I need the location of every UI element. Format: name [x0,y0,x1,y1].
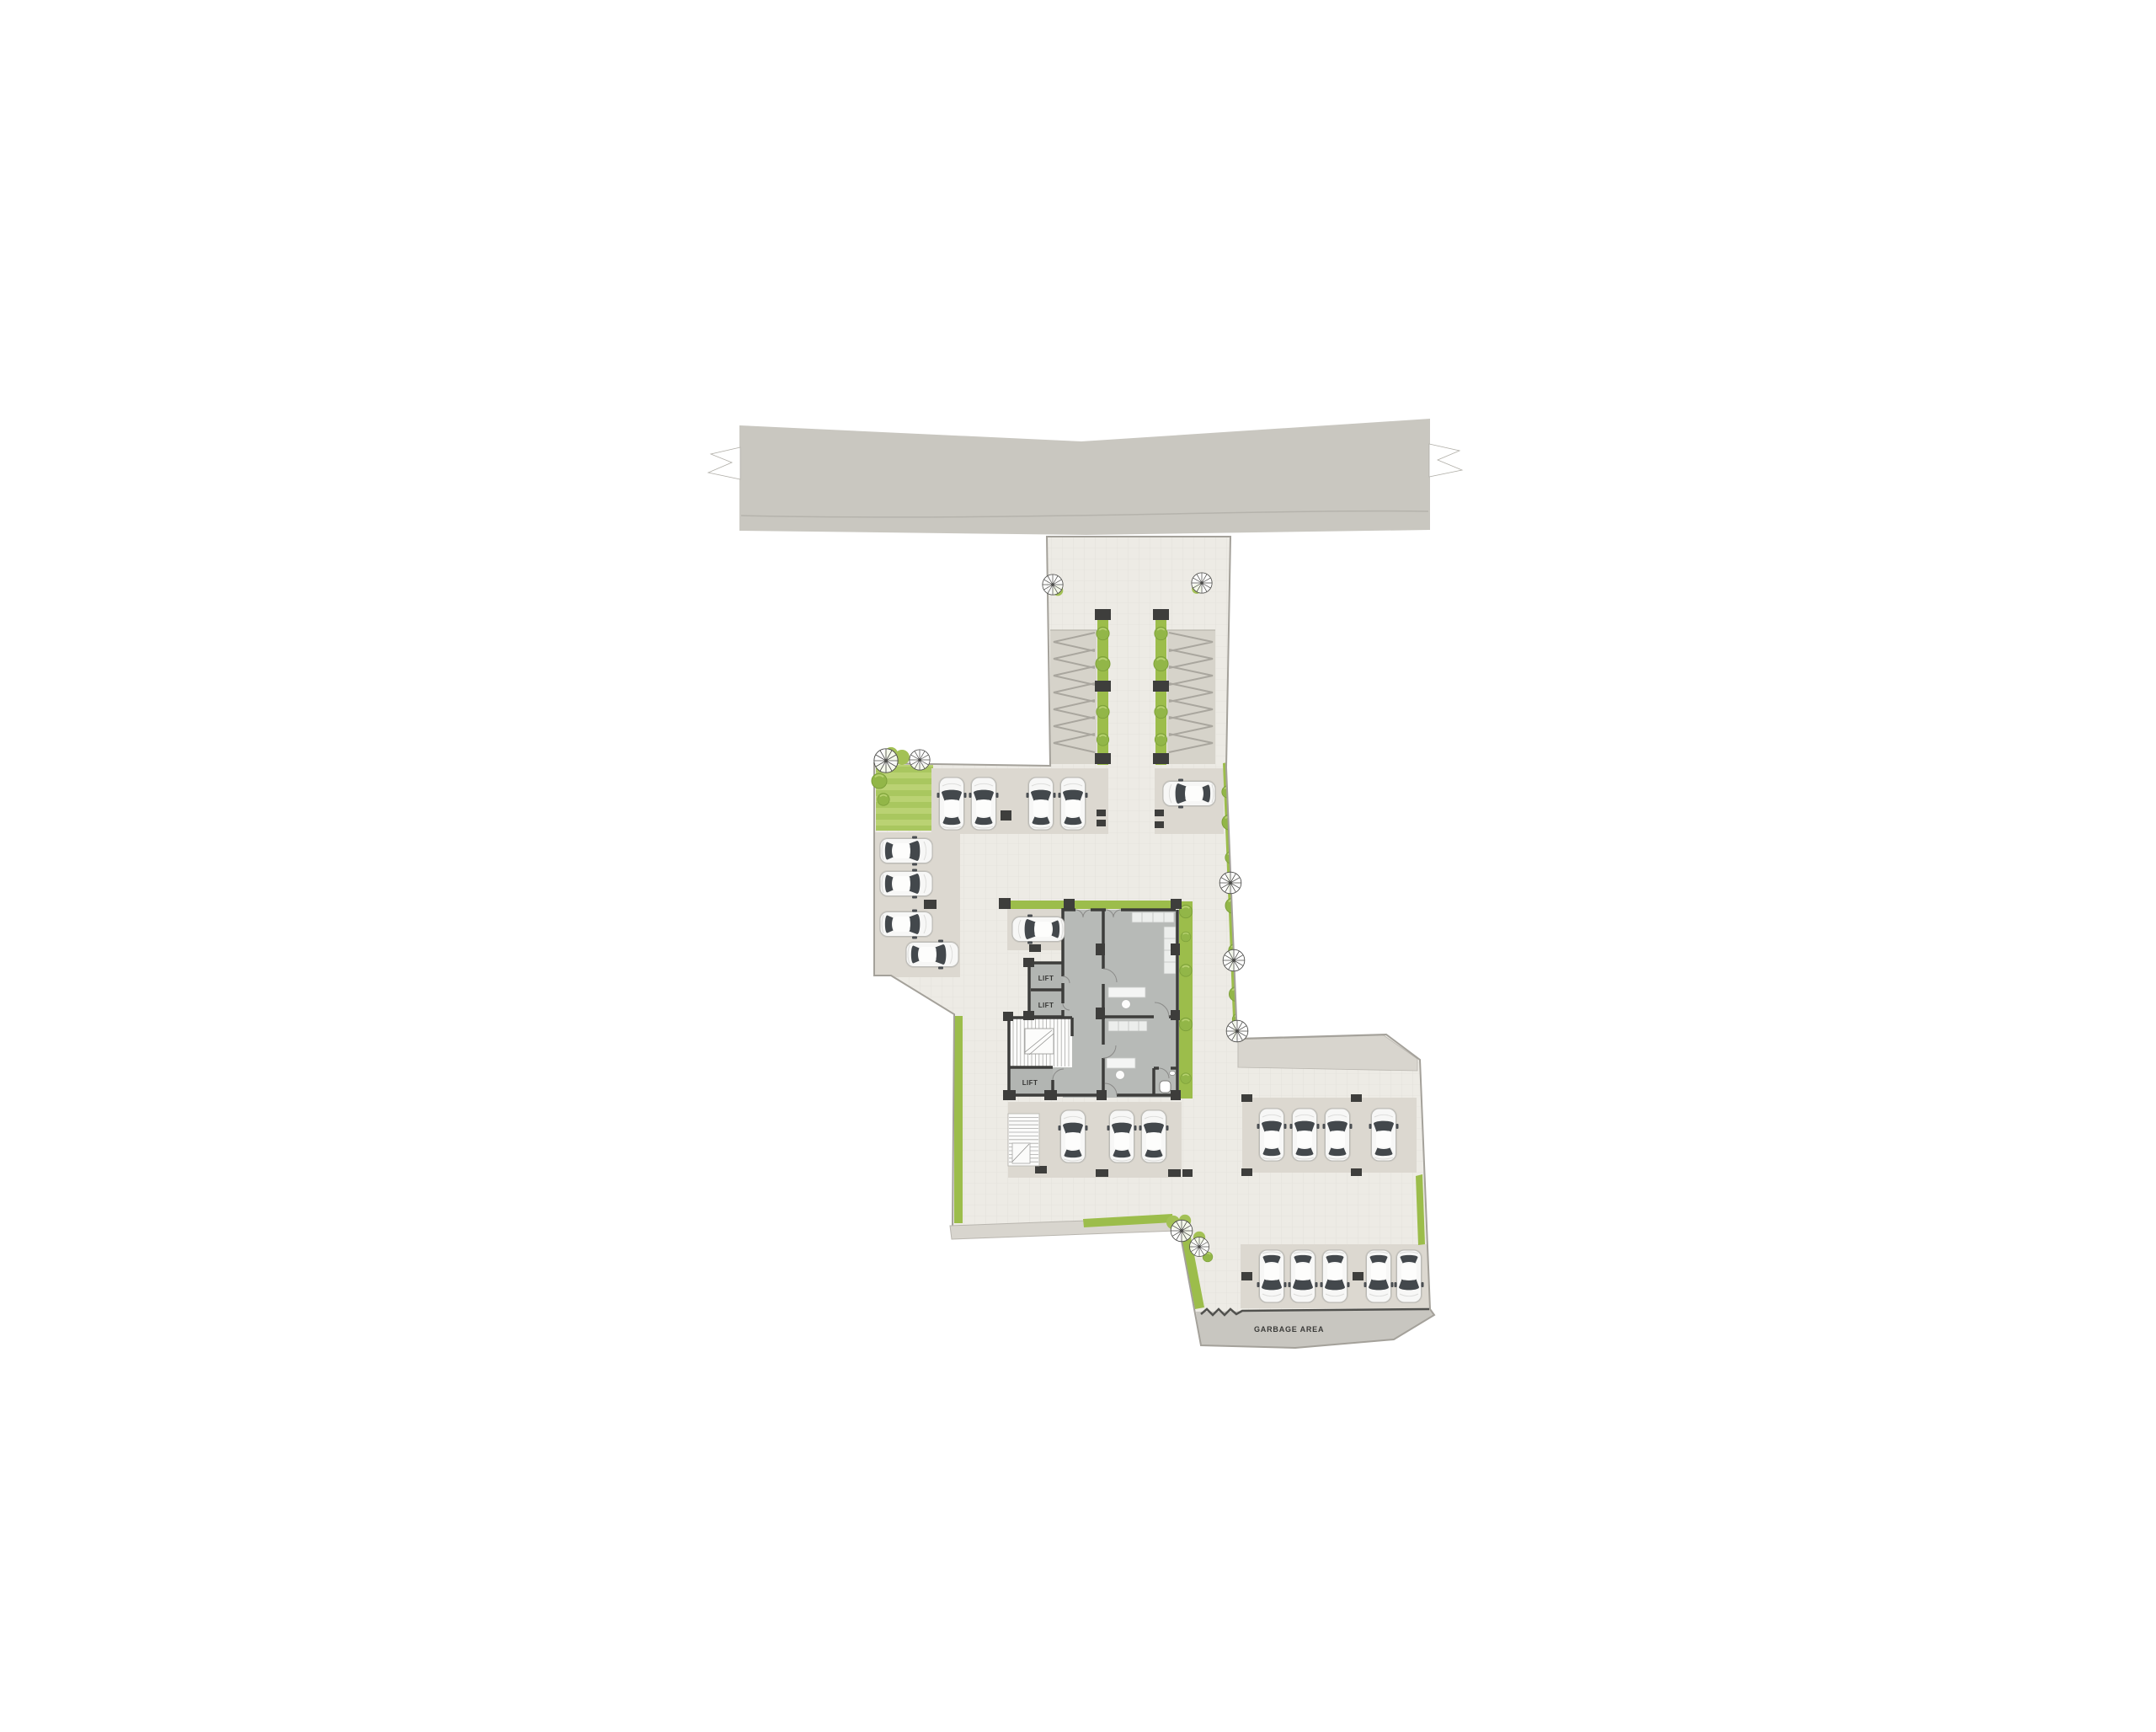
garbage-area: GARBAGE AREA [1196,1309,1434,1348]
car-icon [969,777,999,831]
bush-icon [1155,705,1167,718]
road [708,419,1462,535]
hedge-west-boundary [954,1016,963,1223]
main-staircase [1009,1018,1072,1067]
bush-icon [878,794,889,805]
green-strip-building-north-right [1071,901,1177,909]
road-break-mark-right [1429,444,1462,477]
car-icon [937,777,967,831]
car-icon [1323,1108,1353,1162]
car-icon [1257,1108,1287,1162]
car-icon [879,910,933,939]
car-icon [1027,777,1056,831]
car-icon [905,940,959,970]
tree-icon [1192,573,1212,593]
sidewalk-northeast [1238,1035,1417,1071]
car-icon [1139,1109,1169,1163]
tree-icon [1171,1220,1193,1242]
sink-fixture [1170,1072,1176,1076]
bush-icon [1155,627,1167,639]
bush-icon [1154,656,1168,671]
tree-icon [910,750,930,770]
bush-icon [1181,1073,1192,1084]
car-icon [1290,1108,1320,1162]
car-icon [1369,1108,1399,1162]
car-icon [879,837,933,866]
site-plan-page: GARBAGE AREA [0,0,2156,1732]
car-icon [1289,1249,1318,1303]
car-icon [1162,779,1216,809]
road-break-mark-left [708,447,740,479]
bush-icon [1155,734,1166,746]
tree-icon [1190,1238,1209,1257]
exterior-stair [1008,1114,1039,1166]
tree-icon [1223,949,1245,971]
car-icon [1059,1109,1088,1163]
bush-icon [872,773,887,788]
bush-icon [1096,656,1110,671]
bush-icon [1180,965,1192,976]
bush-icon [1181,932,1191,942]
site-plan-canvas: GARBAGE AREA [0,0,2156,1732]
car-icon [1395,1249,1424,1303]
bush-icon [1225,852,1237,863]
bush-icon [1222,815,1237,830]
bush-icon [1097,627,1109,639]
car-icon [1257,1249,1287,1303]
garbage-area-label: GARBAGE AREA [1254,1325,1324,1334]
lift-2-label: LIFT [1038,1002,1054,1009]
bush-icon [1225,898,1241,913]
bush-icon [1097,705,1109,718]
car-icon [1059,777,1088,831]
bush-icon [1097,734,1108,746]
green-strip-building-east [1179,901,1193,1099]
car-icon [1364,1249,1394,1303]
lift-1-label: LIFT [1038,975,1054,982]
car-icon [1011,915,1065,944]
toilet-fixture [1160,1081,1171,1093]
car-icon [1107,1109,1137,1163]
lobby-floor [1063,910,1103,1098]
tree-icon [874,749,898,772]
bush-icon [1179,1018,1192,1030]
tree-icon [1219,872,1241,894]
tree-icon [1043,575,1063,595]
car-icon [1321,1249,1350,1303]
car-icon [879,869,933,899]
tree-icon [1226,1020,1248,1042]
lift-3-label: LIFT [1022,1079,1038,1087]
